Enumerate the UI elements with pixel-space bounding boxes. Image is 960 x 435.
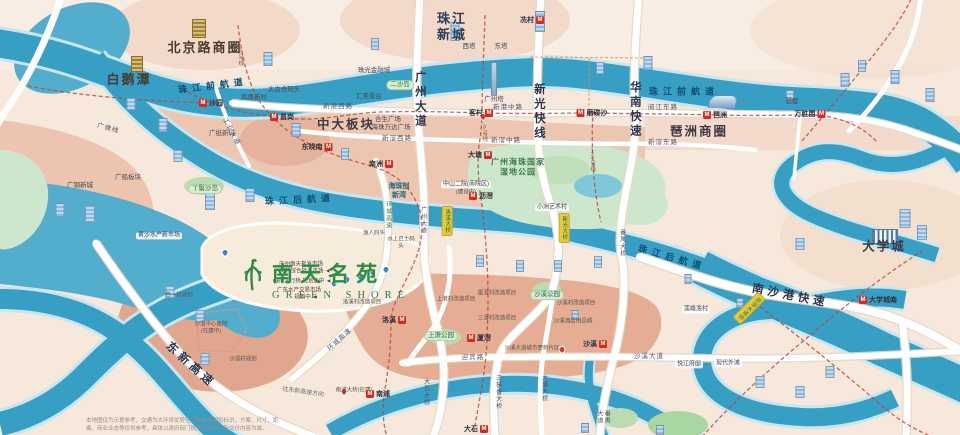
road-ring-expressway: 环城高速 xyxy=(383,201,390,229)
poi-taikoo-wharf: 太古仓码头 xyxy=(268,86,301,94)
river-back-channel-east: 珠江后航道 xyxy=(637,243,707,273)
poi-shajiao-hospital-status: (在建中) xyxy=(201,329,221,336)
poi-huimei: 汇美景台 xyxy=(356,93,382,101)
metro-station-沙园: M沙园 xyxy=(199,98,223,108)
road-direction-dongxin: 往东新高速方向 xyxy=(282,387,325,400)
poi-hesheng-plaza: 合生广场 xyxy=(375,116,401,124)
disclaimer-line-2: 离、商业业态等仅供参考，具体以政府部门批准文件及实际交付内容为准。 xyxy=(86,425,396,433)
metro-station-label: 大学城南 xyxy=(869,295,897,305)
road-xingang-west: 新港西路 xyxy=(323,103,353,111)
poi-shangjiao-renewal: 上漖村改造项目 xyxy=(437,297,476,304)
metro-station-沙溪: 沙溪M xyxy=(583,339,607,349)
metro-icon: M xyxy=(398,316,406,324)
river-back-channel-west: 珠江后航道 xyxy=(265,193,335,207)
road-ring-expressway-south: 环城高速 xyxy=(326,327,354,353)
metro-station-label: 冼村 xyxy=(520,15,534,25)
metro-station-label: 南浦 xyxy=(376,389,390,399)
metro-station-昌岗: M昌岗 xyxy=(270,112,294,122)
metro-station-洛溪: 洛溪M xyxy=(382,315,406,325)
metro-icon: M xyxy=(485,109,493,117)
poi-huangsha-market: 黄沙水产新市场 xyxy=(136,232,182,239)
road-xinguang-express: 新光快线 xyxy=(531,83,545,141)
metro-station-大学城南: M大学城南 xyxy=(859,295,897,305)
poi-shaxi-renewal-zone: 沙溪大道城市更新片区 xyxy=(504,346,559,353)
area-guanggang: 广钢新城 xyxy=(67,182,93,190)
metro-station-label: 大石 xyxy=(464,424,478,434)
metro-station-厦滘: M厦滘 xyxy=(467,333,491,343)
poi-xiaozhou-village: 小洲艺术村 xyxy=(535,204,569,211)
poi-xiajiao-renewal: 厦滘村改造项目 xyxy=(478,291,517,298)
area-wetland-park: 广州海珠国家湿地公园 xyxy=(488,158,548,179)
poi-yajisha-island: 丫髻沙岛 xyxy=(188,184,222,194)
poi-fisherman-wharf: 渔人码头 xyxy=(363,231,385,238)
metro-station-label: 沙园 xyxy=(209,98,223,108)
poi-hospital-zhongshan: 中山二院(南院区) xyxy=(441,181,491,188)
map-disclaimer: 本地图仅为示意参考，交通为大环境优势空间距离用图形标识，方案、尺寸、距 离、商业… xyxy=(86,417,396,434)
road-huanan-expressway: 华南快速 xyxy=(627,81,641,139)
poi-water-bus-wharf: 水上巴士码头 xyxy=(387,236,415,249)
bridge-dashi: 大石大桥 xyxy=(421,378,428,406)
road-gongye-avenue: 工业大道 xyxy=(221,117,242,147)
area-haizhu-bay: 海珠创新湾 xyxy=(387,182,411,200)
metro-icon: M xyxy=(385,160,393,168)
river-front-channel-east: 珠江前航道 xyxy=(649,87,719,98)
metro-icon: M xyxy=(577,109,585,117)
bridge-lijiao-tag: 沥滘水道桥 xyxy=(733,292,766,325)
poi-party-pier: 琶醍 xyxy=(786,98,799,106)
poi-ersha-island: 二沙岛 xyxy=(386,80,414,90)
metro-station-label: 沙溪 xyxy=(583,339,597,349)
poi-zhuguang-finance: 珠光金融城 xyxy=(358,67,391,75)
bridge-dachong: 大涌大桥 xyxy=(539,374,546,402)
metro-station-label: 万胜围 xyxy=(795,109,816,119)
metro-station-南洲: 南洲M xyxy=(369,159,393,169)
poi-canton-tower: 广州塔 xyxy=(484,96,504,104)
location-map: 北京路商圈白鹅潭珠江新城中大板块琶洲商圈大学城广钢新城广船板块广纸新城海珠创新湾… xyxy=(0,0,960,435)
river-front-channel-west: 珠江前航道 xyxy=(178,76,249,95)
metro-station-label: 客村 xyxy=(469,108,483,118)
road-panyu-avenue: 番禺大道 xyxy=(595,408,609,426)
metro-station-label: 东晓南 xyxy=(302,142,323,152)
bridge-xinguang-tag: 新光大桥 xyxy=(559,213,570,243)
poi-shaxi-renewal: 沙溪村改造项目 xyxy=(557,301,596,308)
poi-xiyi-plan: 西一村规划 xyxy=(165,293,193,300)
road-xinjiao-east: 新滘东路 xyxy=(648,139,678,147)
poi-shaxi-hotel-city: 沙溪酒店用品城 xyxy=(554,319,593,326)
poi-east-tower: 东塔 xyxy=(495,43,508,51)
poi-shangjiao-park: 上漖公园 xyxy=(424,331,458,341)
metro-icon: M xyxy=(536,16,544,24)
metro-icon: M xyxy=(484,151,492,159)
metro-icon: M xyxy=(325,143,333,151)
project-name-en: GREEN SHORE xyxy=(272,290,410,301)
metro-station-沥滘: M沥滘 xyxy=(469,191,493,201)
metro-station-万胜围: 万胜围M xyxy=(795,109,826,119)
road-xingang-middle: 新港中路 xyxy=(493,104,523,112)
bridge-luoxi-tag: 洛溪大桥 xyxy=(442,206,453,236)
metro-icon: M xyxy=(818,110,826,118)
area-baietan: 白鹅潭 xyxy=(106,72,151,88)
metro-line-2-label: 2号线 xyxy=(237,49,244,66)
road-dongxin-expressway: 东新高速 xyxy=(162,340,217,392)
metro-station-大石: 大石M xyxy=(464,424,488,434)
poi-yuejiang-estate: 悦江府邸 xyxy=(675,361,703,368)
road-yingbin: 迎宾路 xyxy=(462,354,485,362)
project-name-cn: 南天名苑 xyxy=(272,258,410,288)
metro-station-label: 琶洲 xyxy=(713,110,727,120)
metro-icon: M xyxy=(270,113,278,121)
poi-wanda-plaza: 海珠万达广场 xyxy=(372,124,411,132)
metro-station-label: 磨碟沙 xyxy=(587,108,608,118)
metro-station-label: 南洲 xyxy=(369,159,383,169)
metro-line-3-label: 3号线 xyxy=(481,125,488,142)
metro-station-南浦: M南浦 xyxy=(366,389,390,399)
road-yuejiang-east: 阅江东路 xyxy=(648,104,678,112)
poi-modern-bund: 现代外滩 xyxy=(714,360,742,367)
metro-icon: M xyxy=(469,192,477,200)
metro-station-label: 洛溪 xyxy=(382,315,396,325)
metro-station-磨碟沙: M磨碟沙 xyxy=(577,108,608,118)
metro-station-label: 沥滘 xyxy=(479,191,493,201)
area-guangzhi: 广纸新城 xyxy=(209,130,235,138)
metro-station-客村: 客村M xyxy=(469,108,493,118)
poi-sanjiao-renewal: 三滘村改造项目 xyxy=(478,316,517,323)
metro-icon: M xyxy=(599,340,607,348)
metro-icon: M xyxy=(480,425,488,433)
metro-station-东晓南: 东晓南M xyxy=(302,142,333,152)
poi-fenghuang: 凤凰新村 xyxy=(241,94,267,102)
area-beijinglu: 北京路商圈 xyxy=(167,40,242,56)
road-nansha-port-expressway: 南沙港快速 xyxy=(751,283,830,311)
metro-station-冼村: 冼村M xyxy=(520,15,544,25)
road-xinjiao-middle: 新滘中路 xyxy=(491,137,521,145)
area-pazhou: 琶洲商圈 xyxy=(670,125,728,140)
disclaimer-line-1: 本地图仅为示意参考，交通为大环境优势空间距离用图形标识，方案、尺寸、距 xyxy=(86,417,396,425)
metro-guangfo-line: 广佛线 xyxy=(96,122,120,135)
metro-icon: M xyxy=(366,390,374,398)
road-shaxi-avenue: 沙溪大道 xyxy=(634,353,664,361)
road-guangzhou-avenue-bridge: 广州大道 xyxy=(418,206,425,234)
area-zhujiang-new-town: 珠江新城 xyxy=(435,11,469,44)
poi-shajiao-plan: 沙滘村规划 xyxy=(229,357,257,364)
metro-icon: M xyxy=(859,296,867,304)
metro-station-label: 昌岗 xyxy=(280,112,294,122)
poi-west-tower: 西塔 xyxy=(463,43,476,51)
area-zhongda: 中大板块 xyxy=(317,118,375,133)
metro-icon: M xyxy=(703,111,711,119)
road-xinjiao-west: 新滘西路 xyxy=(382,135,412,143)
poi-lianfeng-village: 莲峰渔村 xyxy=(682,306,710,313)
area-university-town: 大学城 xyxy=(862,240,906,255)
poi-shaxi-park: 沙溪公园 xyxy=(530,290,564,300)
metro-station-琶洲: M琶洲 xyxy=(703,110,727,120)
metro-station-大塘: 大塘M xyxy=(468,150,492,160)
metro-line-12-label: 12号线 xyxy=(589,149,596,172)
metro-icon: M xyxy=(199,99,207,107)
metro-icon: M xyxy=(467,334,475,342)
road-guangzhou-avenue: 广州大道 xyxy=(412,71,426,129)
metro-station-label: 大塘 xyxy=(468,150,482,160)
bridge-sanzhixiang: 三枝香大桥 xyxy=(493,375,500,410)
bridge-panyu: 番禺大桥 xyxy=(617,229,624,257)
tree-icon xyxy=(240,258,266,292)
project-logo: 南天名苑 GREEN SHORE xyxy=(240,258,410,301)
map-labels-layer: 北京路商圈白鹅潭珠江新城中大板块琶洲商圈大学城广钢新城广船板块广纸新城海珠创新湾… xyxy=(0,0,960,435)
poi-shajiao-hospital: 沙滘中心医院 xyxy=(194,322,227,329)
area-guangchuan: 广船板块 xyxy=(115,174,141,182)
metro-station-label: 厦滘 xyxy=(477,333,491,343)
